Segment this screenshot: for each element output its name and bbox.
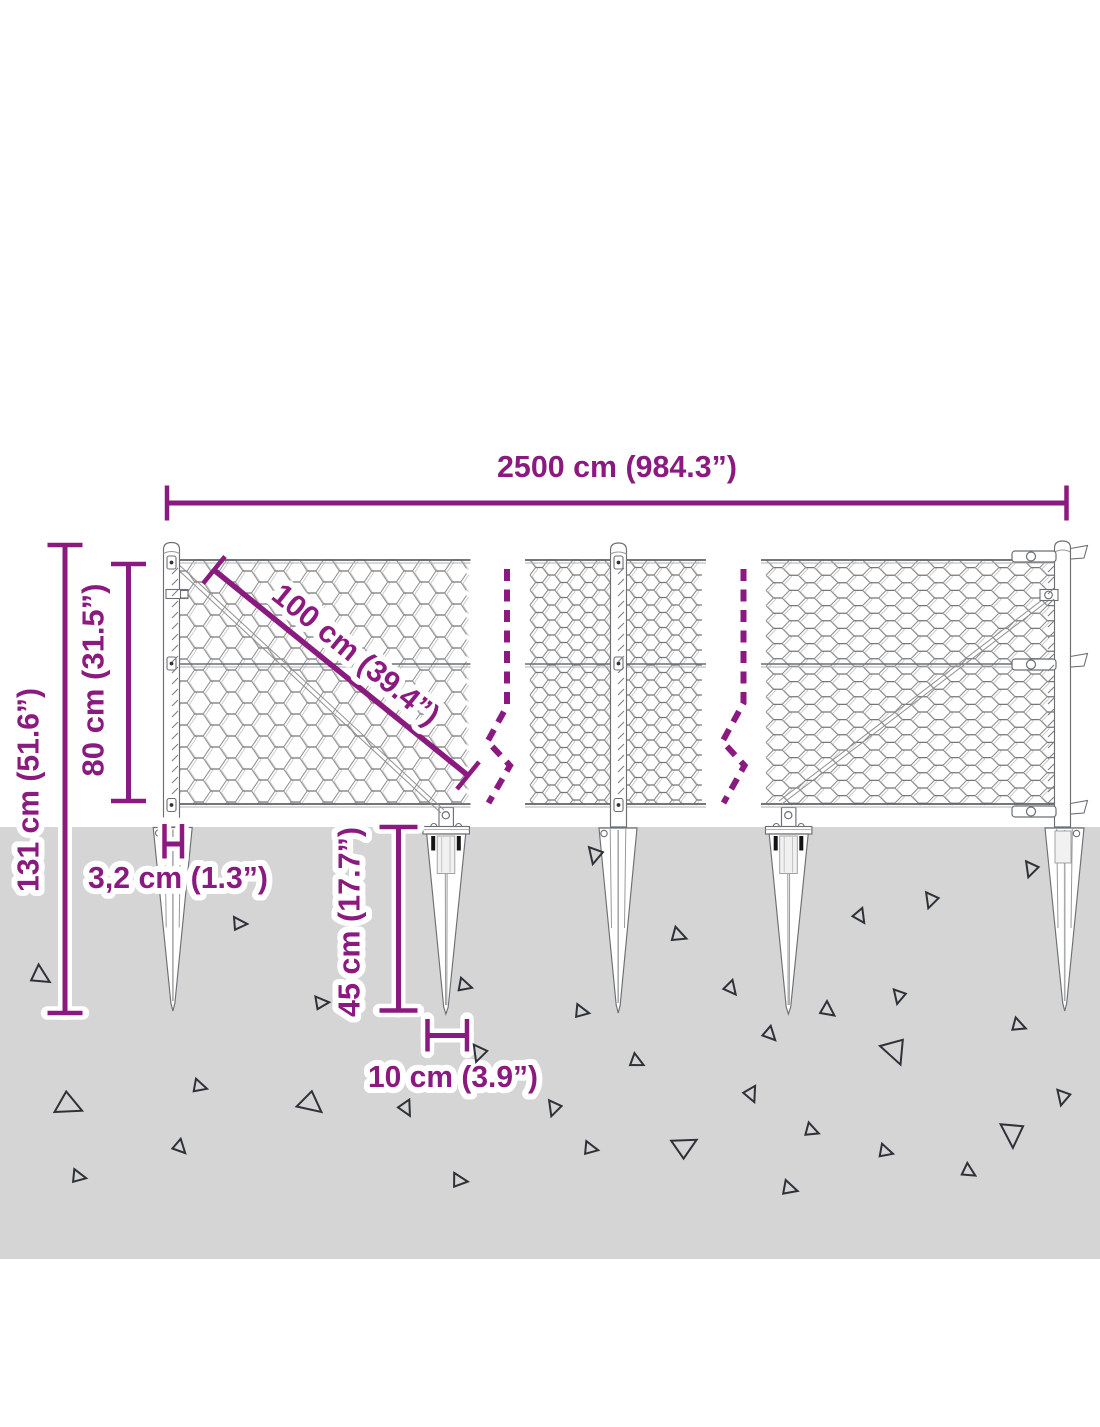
svg-text:45 cm (17.7”): 45 cm (17.7”)	[333, 827, 367, 1017]
svg-text:131 cm (51.6”): 131 cm (51.6”)	[12, 688, 46, 892]
svg-text:2500 cm (984.3”): 2500 cm (984.3”)	[497, 450, 737, 484]
svg-text:80 cm (31.5”): 80 cm (31.5”)	[77, 584, 111, 777]
svg-text:3,2 cm (1.3”): 3,2 cm (1.3”)	[88, 861, 268, 895]
svg-text:10 cm (3.9”): 10 cm (3.9”)	[368, 1060, 538, 1094]
